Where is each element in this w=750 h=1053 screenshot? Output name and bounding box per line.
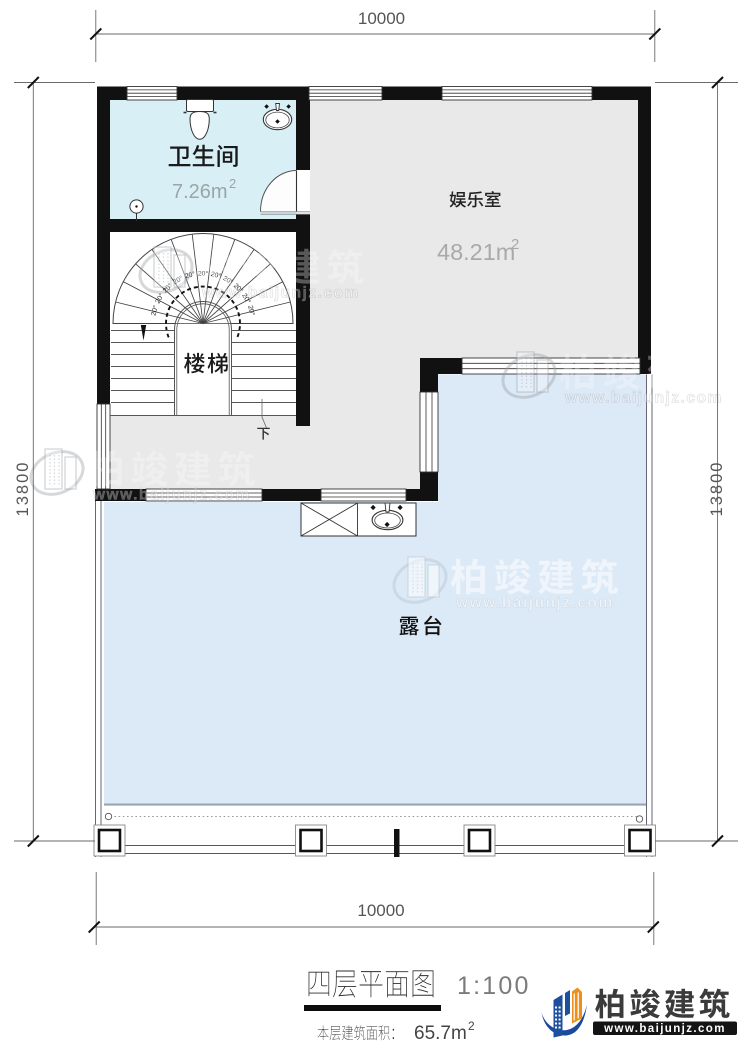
svg-text:www.baijunjz.com: www.baijunjz.com: [201, 285, 360, 302]
svg-text:10000: 10000: [357, 901, 404, 920]
svg-text:10000: 10000: [358, 9, 405, 28]
svg-text:48.21m: 48.21m: [437, 239, 515, 265]
svg-text:1:100: 1:100: [457, 972, 531, 1000]
svg-text:2: 2: [229, 176, 236, 191]
svg-text:7.26m: 7.26m: [172, 181, 228, 203]
svg-text:www.baijunjz.com: www.baijunjz.com: [92, 487, 251, 504]
svg-text:www.baijunjz.com: www.baijunjz.com: [564, 390, 723, 407]
svg-text:13800: 13800: [14, 461, 32, 517]
svg-text:13800: 13800: [708, 461, 726, 517]
svg-text:65.7m: 65.7m: [414, 1023, 467, 1044]
svg-text:www.baijunjz.com: www.baijunjz.com: [455, 595, 614, 612]
svg-text:www.baijunjz.com: www.baijunjz.com: [603, 1023, 726, 1035]
svg-text:2: 2: [511, 236, 519, 253]
svg-text:2: 2: [468, 1019, 475, 1033]
